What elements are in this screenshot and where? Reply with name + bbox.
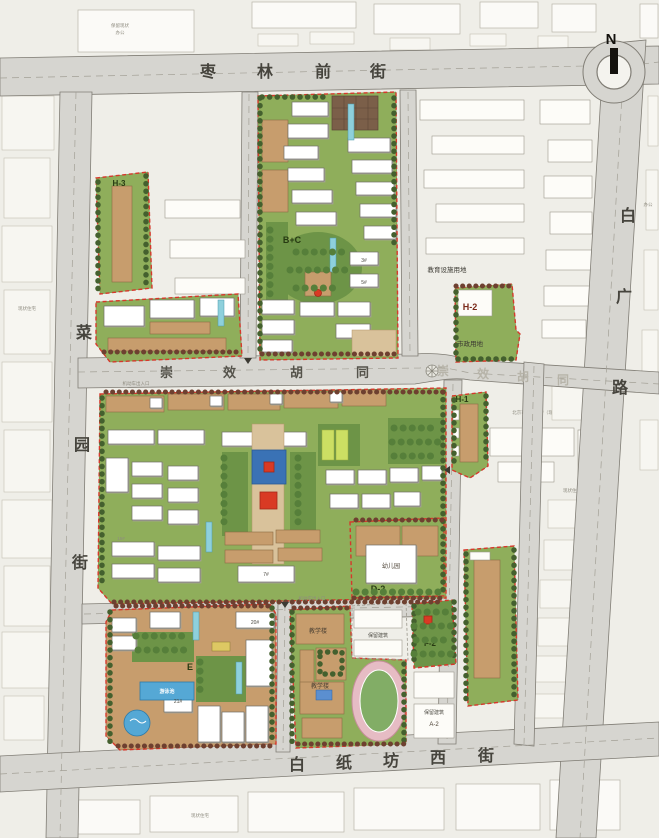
parcel-h2-label: H-2 <box>463 302 478 312</box>
street-name-char: 效 <box>223 365 237 380</box>
parcel-h3-label: H-3 <box>113 179 126 188</box>
street-name-char: 枣 <box>199 62 217 81</box>
parcel-bc: B+C 3# 5# <box>258 92 398 360</box>
street-name-char: 街 <box>477 746 494 765</box>
context-label: 保留现状 <box>111 22 129 29</box>
school-building-label: 教学楼 <box>311 682 329 690</box>
context-label: 办公 <box>116 29 125 36</box>
street-name-char: 前 <box>315 62 331 81</box>
context-label: 现状住宅 <box>191 812 209 819</box>
parcel-central: 15# 7# 幼儿园 D-2 <box>98 388 446 604</box>
kindergarten-label: 幼儿园 <box>382 562 400 570</box>
parcel-h1: H-1 <box>452 392 488 478</box>
pool-label: 游泳池 <box>159 688 174 695</box>
street-name-char: 菜 <box>75 323 92 342</box>
entrance-label: 机动车出入口 <box>123 380 150 387</box>
street-name-char: 坊 <box>383 751 399 770</box>
parcel-right-existing <box>464 546 518 706</box>
street-name-char: 街 <box>71 553 88 572</box>
school-building-label: 教学楼 <box>309 627 327 635</box>
street-name-char: 林 <box>257 62 273 81</box>
street-name-char: 街 <box>369 62 386 81</box>
street-name-char: 西 <box>430 749 446 767</box>
street-name-char: 崇 <box>160 365 174 380</box>
street-name-char: 纸 <box>336 753 352 772</box>
parcel-bc-label: B+C <box>283 235 302 245</box>
road-inner-b <box>400 90 418 356</box>
site-plan-page: 保留现状 办公 现状住宅 办公 教育设施用地 <box>0 0 659 838</box>
north-label: N <box>606 31 617 48</box>
central-plaza-red <box>260 492 277 509</box>
parcel-h1-label: H-1 <box>456 395 469 404</box>
building-number: 21# <box>174 699 183 705</box>
building-number: 5# <box>361 280 367 286</box>
road-east-lane <box>514 362 544 746</box>
parcel-e: 游泳池 E 20# 21# <box>106 604 276 750</box>
street-name-char: 同 <box>356 365 370 380</box>
street-caiyuan <box>46 92 92 838</box>
street-name-char: 路 <box>612 378 629 397</box>
context-label: 办公 <box>644 201 653 208</box>
retained-buildings-school: 保留建筑 <box>352 602 408 660</box>
school-atrium <box>316 690 332 700</box>
street-name-char: 广 <box>616 287 632 306</box>
parcel-e-label: E <box>187 662 193 672</box>
context-label: 现状住宅 <box>18 305 36 312</box>
retained-label: 保留建筑 <box>424 709 444 716</box>
street-name-char: 白 <box>289 755 305 774</box>
street-name-char: 同 <box>557 373 569 387</box>
retained-buildings-a2: 保留建筑 A-2 <box>414 672 454 738</box>
street-name-char: 胡 <box>517 369 529 384</box>
building-number: 3# <box>361 258 367 264</box>
parcel-a2-label: A-2 <box>429 722 439 728</box>
edu-land-label: 教育设施用地 <box>428 265 468 274</box>
retained-label: 保留建筑 <box>368 632 388 639</box>
street-name-char: 效 <box>477 366 490 381</box>
street-name-char: 白 <box>620 206 636 225</box>
entrance-label: 机动车出入口 <box>299 595 326 602</box>
parcel-h2-use-label: 市政用地 <box>457 339 484 348</box>
street-name-char: 园 <box>74 436 90 454</box>
street-name-char: 崇 <box>437 363 449 378</box>
existing-housing-mid <box>165 200 245 294</box>
swimming-pool-round <box>124 710 150 736</box>
building-number: 15# <box>117 536 125 541</box>
building-number: 20# <box>251 620 260 626</box>
building-number: 7# <box>263 572 269 578</box>
street-name-char: 胡 <box>290 365 304 380</box>
site-plan-map: 保留现状 办公 现状住宅 办公 教育设施用地 <box>0 0 659 838</box>
parcel-h2: H-2 市政用地 <box>455 284 520 362</box>
